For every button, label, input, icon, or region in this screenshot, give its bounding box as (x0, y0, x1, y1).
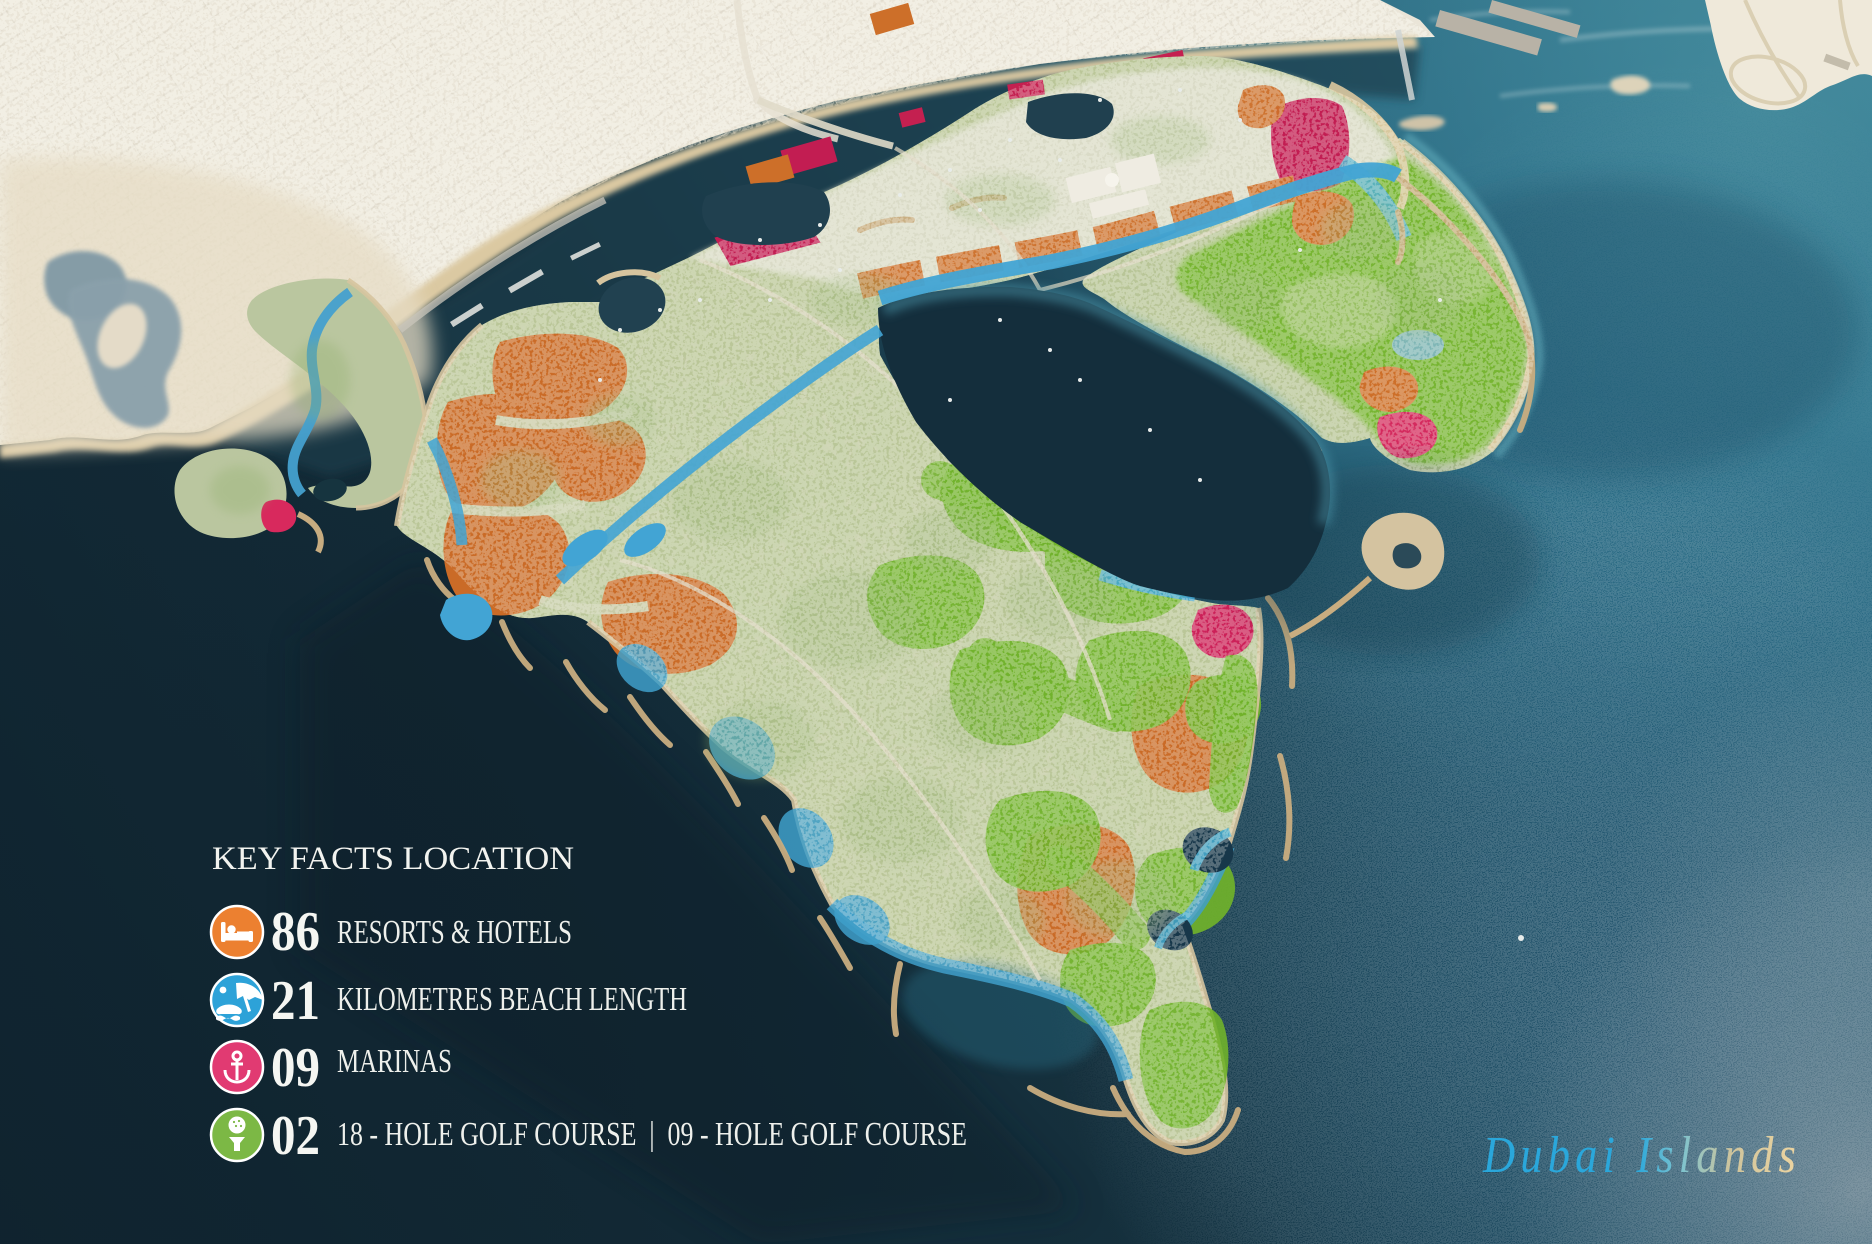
svg-text:Dubai Islands: Dubai Islands (1482, 1127, 1801, 1184)
svg-text:09: 09 (271, 1037, 320, 1099)
svg-text:02: 02 (271, 1105, 320, 1167)
svg-text:KILOMETRES BEACH LENGTH: KILOMETRES BEACH LENGTH (337, 981, 687, 1018)
svg-text:RESORTS & HOTELS: RESORTS & HOTELS (337, 914, 572, 951)
svg-text:MARINAS: MARINAS (337, 1043, 452, 1080)
svg-text:21: 21 (271, 970, 320, 1032)
svg-text:18 - HOLE GOLF COURSE | 09 -: 18 - HOLE GOLF COURSE | 09 - HOLE GOLF C… (337, 1116, 967, 1153)
svg-text:KEY FACTS LOCATION: KEY FACTS LOCATION (212, 841, 574, 877)
svg-text:86: 86 (271, 901, 320, 963)
